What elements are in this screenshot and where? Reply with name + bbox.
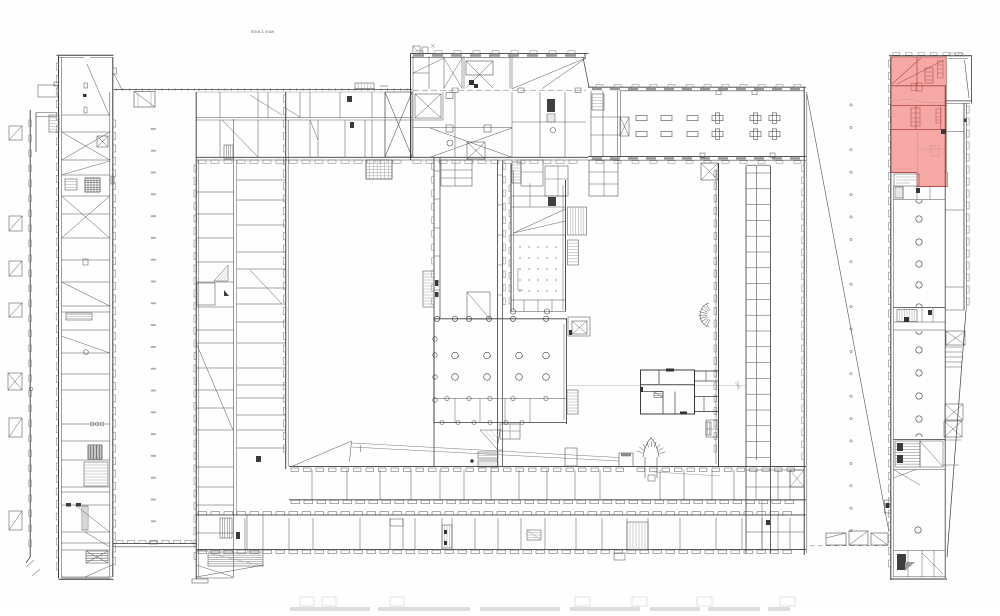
svg-text:30000: 30000	[380, 84, 389, 88]
svg-text:Блок 1 этаж: Блок 1 этаж	[251, 29, 274, 34]
